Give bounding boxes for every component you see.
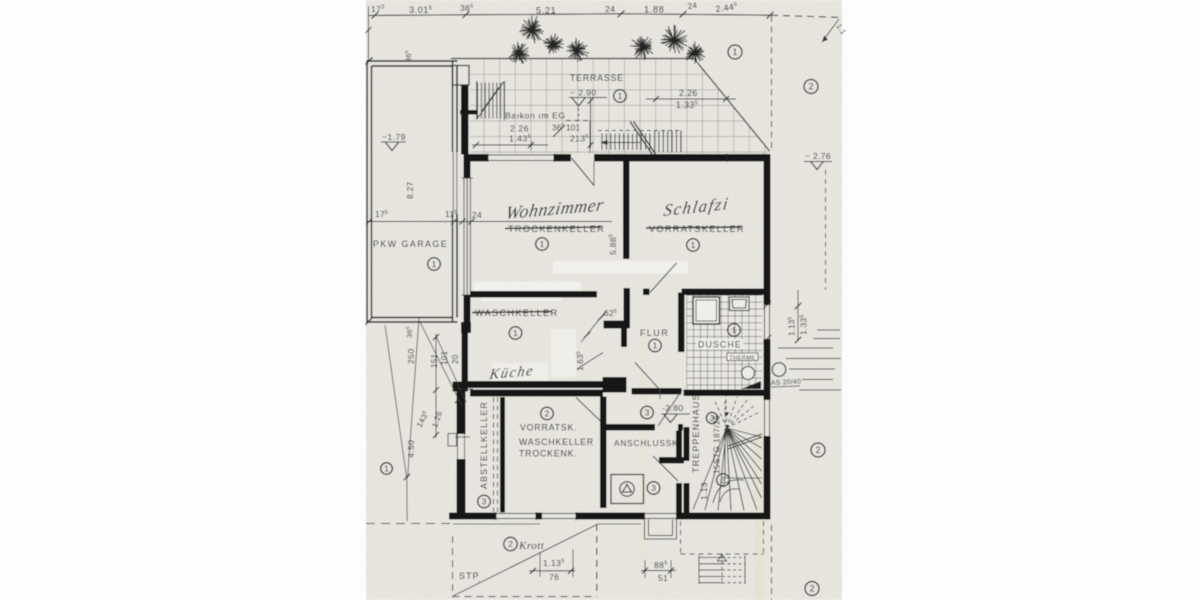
svg-text:151: 151 — [430, 354, 439, 368]
svg-text:101: 101 — [440, 351, 449, 365]
svg-text:WASCHKELLER: WASCHKELLER — [519, 437, 594, 447]
svg-text:STP: STP — [459, 571, 480, 581]
svg-text:DUSCHE: DUSCHE — [698, 340, 742, 350]
svg-text:TROCKENK.: TROCKENK. — [519, 449, 578, 459]
svg-text:THERME: THERME — [730, 355, 756, 361]
svg-text:3: 3 — [482, 497, 487, 507]
svg-text:.: . — [478, 575, 481, 584]
svg-text:2: 2 — [808, 82, 813, 92]
svg-text:5.21: 5.21 — [536, 6, 556, 16]
svg-text:1: 1 — [513, 328, 518, 338]
svg-text:Baıkon ım EG: Baıkon ım EG — [505, 111, 566, 121]
svg-text:1: 1 — [618, 91, 623, 101]
svg-text:20: 20 — [451, 354, 460, 364]
svg-text:1: 1 — [653, 341, 658, 351]
svg-text:1: 1 — [540, 239, 545, 249]
svg-text:51: 51 — [658, 573, 668, 583]
svg-text:4.50: 4.50 — [406, 440, 416, 458]
svg-text:101: 101 — [566, 124, 581, 133]
svg-text:24: 24 — [687, 1, 698, 11]
svg-text:1: 1 — [732, 325, 737, 335]
svg-text:~ 2.76: ~ 2.76 — [805, 151, 831, 161]
svg-text:VORRATSK.: VORRATSK. — [520, 423, 577, 433]
svg-text:250: 250 — [406, 348, 416, 364]
svg-text:1: 1 — [384, 464, 389, 474]
svg-text:~ 2.90: ~ 2.90 — [570, 88, 597, 98]
svg-text:TROCKENKELLER: TROCKENKELLER — [508, 224, 605, 234]
svg-text:3: 3 — [651, 483, 656, 493]
svg-text:2: 2 — [545, 409, 550, 419]
svg-text:~1.79: ~1.79 — [382, 132, 406, 142]
svg-text:PKW GARAGE: PKW GARAGE — [373, 239, 448, 249]
svg-text:2.26: 2.26 — [679, 88, 698, 98]
svg-text:2: 2 — [809, 584, 814, 594]
svg-text:FLUR: FLUR — [640, 328, 669, 338]
svg-text:ABSTELLKELLER: ABSTELLKELLER — [479, 401, 489, 489]
svg-text:VORRATSKELLER: VORRATSKELLER — [649, 224, 745, 234]
svg-text:1: 1 — [732, 47, 737, 57]
svg-text:ANSCHLUSSK: ANSCHLUSSK — [614, 439, 679, 448]
svg-text:3: 3 — [645, 408, 650, 418]
svg-text:15STG 187/26: 15STG 187/26 — [713, 415, 722, 474]
svg-text:-2.80: -2.80 — [662, 403, 684, 413]
svg-text:1.88: 1.88 — [644, 5, 664, 15]
svg-text:2: 2 — [815, 445, 820, 455]
svg-text:76: 76 — [549, 572, 559, 582]
svg-text:1: 1 — [691, 240, 696, 250]
svg-text:1: 1 — [432, 259, 437, 269]
svg-text:TERRASSE: TERRASSE — [570, 73, 624, 83]
svg-text:24: 24 — [605, 4, 615, 14]
svg-text:Krott: Krott — [518, 540, 545, 552]
svg-text:2 26: 2 26 — [510, 124, 529, 134]
svg-text:1.13: 1.13 — [699, 482, 709, 500]
svg-text:TREPPENHAUS: TREPPENHAUS — [691, 393, 701, 473]
svg-text:2: 2 — [508, 539, 513, 549]
svg-text:8.27: 8.27 — [405, 181, 415, 199]
svg-text:24: 24 — [472, 210, 482, 220]
